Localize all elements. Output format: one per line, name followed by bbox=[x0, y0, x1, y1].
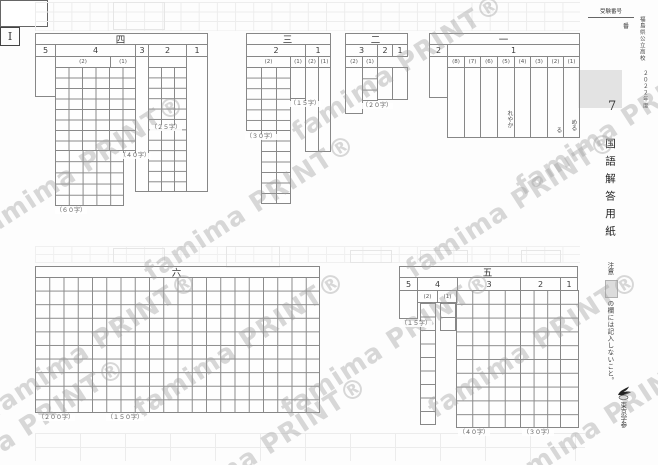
char-count-note: （１５字） bbox=[289, 101, 321, 107]
print-through-box bbox=[226, 246, 280, 268]
char-count-note: （２０字） bbox=[361, 103, 393, 109]
examinee-number-unit: 番 bbox=[623, 24, 629, 30]
print-through-box bbox=[521, 250, 561, 263]
char-count-note: （２００字） bbox=[37, 415, 75, 421]
okurigana-hint-1: める bbox=[569, 119, 576, 131]
set-number: Ⅰ bbox=[8, 30, 12, 43]
okurigana-hint-2: る bbox=[554, 127, 561, 133]
answer-cell-four-1 bbox=[186, 56, 208, 192]
answer-sheet-page: famima PRINT® famima PRINT® famima PRINT… bbox=[0, 0, 658, 465]
char-count-note: （１５字） bbox=[400, 321, 432, 327]
print-through-bottom bbox=[35, 433, 585, 461]
char-count-note: （４０字） bbox=[458, 430, 490, 436]
char-count-note: （６０字） bbox=[55, 208, 87, 214]
notice-head: 注意 bbox=[606, 262, 613, 275]
print-through-box bbox=[350, 250, 392, 263]
answer-cell-one-8 bbox=[447, 67, 465, 138]
answer-cell-one-4 bbox=[514, 67, 531, 138]
set-number-box: Ⅰ bbox=[0, 27, 20, 46]
char-count-note: （２５字） bbox=[150, 125, 182, 131]
examinee-number-label: 受験番号 bbox=[588, 10, 634, 18]
section-five-q2-label: 2 bbox=[520, 277, 561, 291]
char-count-note: （１５０字） bbox=[106, 415, 144, 421]
answer-cell-four-5 bbox=[35, 56, 56, 97]
print-through-box bbox=[113, 2, 165, 30]
answer-cell-one-3 bbox=[530, 67, 548, 138]
answer-cell-one-7 bbox=[464, 67, 481, 138]
answer-cell-one-6 bbox=[480, 67, 498, 138]
char-count-note: （３０字） bbox=[245, 134, 277, 140]
char-count-note: （３０字） bbox=[522, 430, 554, 436]
char-count-note: （４０字） bbox=[119, 153, 151, 159]
section-four-q2-label: 2 bbox=[148, 44, 187, 57]
answer-cell-three-2-1 bbox=[290, 67, 306, 99]
okurigana-hint-5: れやか bbox=[505, 110, 512, 128]
section-five-q1-label: 1 bbox=[560, 277, 578, 291]
answer-grid-three-2-2-upper bbox=[246, 67, 291, 131]
school-name: 福島県公立高校 bbox=[638, 16, 644, 62]
